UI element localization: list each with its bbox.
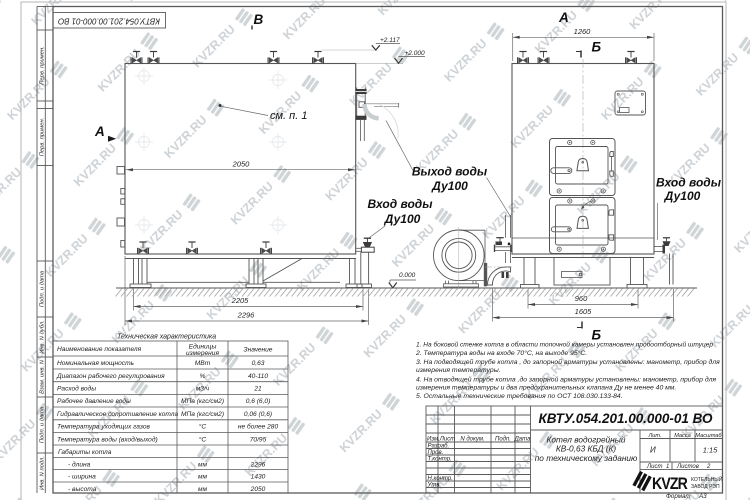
svg-text:960: 960 (575, 294, 588, 303)
svg-text:Формат: Формат (666, 493, 691, 500)
svg-text:Лит.: Лит. (647, 433, 661, 439)
svg-text:Вход воды: Вход воды (656, 176, 722, 190)
svg-text:Подп. и дата: Подп. и дата (40, 406, 46, 443)
svg-text:Перв. примен.: Перв. примен. (40, 118, 46, 157)
svg-text:МПа (кгс/см2): МПа (кгс/см2) (181, 411, 224, 418)
svg-text:Пров.: Пров. (428, 450, 444, 456)
svg-text:Масштаб: Масштаб (695, 433, 722, 439)
svg-text:КВ-0,63 КБД (К): КВ-0,63 КБД (К) (556, 444, 617, 454)
svg-text:КОТЕЛЬНЫЙ: КОТЕЛЬНЫЙ (691, 475, 723, 483)
svg-text:N докум.: N докум. (460, 437, 484, 443)
svg-text:+2.000: +2.000 (405, 50, 425, 57)
svg-text:1. На боковой стенке котла в: 1. На боковой стенке котла в области топ… (416, 341, 713, 349)
svg-text:Температура уходящих газов: Температура уходящих газов (57, 423, 150, 431)
svg-text:измерения температуры.: измерения температуры. (416, 367, 501, 374)
svg-text:2296: 2296 (250, 461, 266, 468)
svg-text:Инв. N дубл.: Инв. N дубл. (40, 320, 46, 354)
svg-text:Инв. N подл.: Инв. N подл. (40, 456, 46, 490)
svg-text:Ду100: Ду100 (664, 189, 701, 203)
svg-text:Утв.: Утв. (427, 483, 442, 489)
svg-text:- длина: - длина (68, 460, 91, 468)
svg-text:°С: °С (199, 435, 207, 443)
svg-text:измерения температуры и два пр: измерения температуры и два предохраните… (416, 384, 676, 392)
svg-text:И: И (650, 446, 656, 455)
svg-text:21: 21 (253, 386, 262, 393)
svg-text:В: В (254, 12, 264, 27)
svg-text:2. Температура воды на входе: 2. Температура воды на входе 70°С, на вы… (415, 349, 587, 357)
svg-text:Температура воды (вход/выход): Температура воды (вход/выход) (57, 435, 158, 443)
svg-text:5. Остальные технические треб: 5. Остальные технические требования по О… (416, 392, 623, 400)
svg-text:не более 280: не более 280 (238, 423, 279, 431)
svg-text:KVZR: KVZR (652, 475, 688, 493)
svg-text:Номинальная мощность: Номинальная мощность (57, 360, 135, 367)
svg-text:мм: мм (198, 461, 208, 468)
svg-text:Б: Б (592, 328, 602, 343)
svg-text:Дата: Дата (514, 437, 531, 443)
svg-text:0,06 (0,6): 0,06 (0,6) (244, 411, 272, 418)
svg-text:- ширина: - ширина (68, 474, 96, 481)
svg-text:А: А (94, 124, 105, 139)
svg-text:4. На отводящей трубе котла ,: 4. На отводящей трубе котла ,до запорной… (416, 376, 716, 384)
svg-text:КВТУ.054.201.00.000-01 ВО: КВТУ.054.201.00.000-01 ВО (539, 411, 713, 427)
svg-text:мм: мм (198, 486, 208, 493)
svg-text:Ду100: Ду100 (384, 212, 421, 226)
svg-text:40-110: 40-110 (248, 373, 268, 380)
svg-text:1430: 1430 (251, 474, 266, 481)
svg-text:Масса: Масса (674, 433, 691, 439)
svg-text:0.000: 0.000 (399, 272, 416, 279)
svg-text:1605: 1605 (575, 307, 593, 316)
svg-text:70/95: 70/95 (250, 436, 267, 443)
svg-text:МПа (кгс/см2): МПа (кгс/см2) (181, 398, 224, 405)
svg-text:мм: мм (198, 474, 208, 481)
svg-text:Лист: Лист (646, 464, 662, 470)
svg-text:Рабочее давление воды: Рабочее давление воды (57, 397, 131, 405)
svg-text:0,63: 0,63 (252, 360, 265, 367)
svg-text:по техническому заданию: по техническому заданию (535, 453, 638, 463)
svg-text:Вход воды: Вход воды (368, 197, 434, 211)
svg-text:КВТУ.054.201.00.000-01 ВО: КВТУ.054.201.00.000-01 ВО (58, 16, 160, 25)
svg-text:см. п. 1: см. п. 1 (270, 110, 307, 122)
svg-text:Наименование показателя: Наименование показателя (57, 346, 142, 353)
svg-text:1:15: 1:15 (703, 446, 718, 455)
svg-text:Ду100: Ду100 (431, 179, 468, 193)
svg-text:2296: 2296 (237, 311, 256, 320)
svg-text:А: А (558, 10, 569, 25)
svg-text:Значение: Значение (244, 347, 273, 354)
svg-text:Подп.: Подп. (495, 437, 511, 443)
svg-text:Б: Б (592, 40, 602, 55)
svg-text:3. На подводящей трубе котла: 3. На подводящей трубе котла , до запорн… (416, 358, 720, 366)
svg-text:Техническая характеристика: Техническая характеристика (117, 334, 216, 341)
svg-text:Т.контр.: Т.контр. (428, 456, 452, 462)
svg-text:0,6 (6,0): 0,6 (6,0) (246, 398, 271, 405)
svg-text:измерения: измерения (186, 350, 219, 357)
svg-text:Листов: Листов (676, 464, 699, 470)
svg-text:Взам. инв. N: Взам. инв. N (40, 359, 46, 394)
svg-text:м3/ч: м3/ч (196, 386, 210, 393)
svg-text:Подп. и дата: Подп. и дата (40, 270, 46, 307)
svg-text:Разраб.: Разраб. (428, 443, 450, 449)
svg-text:2: 2 (706, 464, 711, 470)
svg-text:Перв. примен.: Перв. примен. (40, 46, 46, 85)
svg-text:Габариты котла: Габариты котла (58, 448, 112, 456)
svg-text:2050: 2050 (250, 486, 266, 493)
svg-text:- высота: - высота (68, 486, 97, 493)
svg-text:2205: 2205 (231, 296, 250, 305)
svg-text:Н.контр.: Н.контр. (428, 476, 453, 482)
svg-text:°С: °С (199, 423, 207, 431)
svg-text:+2.117: +2.117 (380, 37, 400, 44)
svg-text:Выход воды: Выход воды (412, 165, 488, 179)
svg-text:Расход воды: Расход воды (57, 385, 96, 393)
svg-text:А3: А3 (698, 493, 707, 500)
svg-text:Гидравлическое сопротивление к: Гидравлическое сопротивление котла (57, 410, 178, 418)
svg-text:1: 1 (666, 464, 669, 470)
svg-text:ЗАВОД РЭП: ЗАВОД РЭП (691, 484, 720, 490)
svg-text:1260: 1260 (574, 27, 592, 36)
svg-text:Диапазон рабочего регулировани: Диапазон рабочего регулирования (56, 372, 165, 380)
svg-text:2050: 2050 (232, 160, 251, 169)
svg-text:МВт: МВт (195, 360, 211, 367)
svg-text:%: % (200, 373, 206, 380)
svg-text:Изм.Лист: Изм.Лист (427, 437, 455, 443)
